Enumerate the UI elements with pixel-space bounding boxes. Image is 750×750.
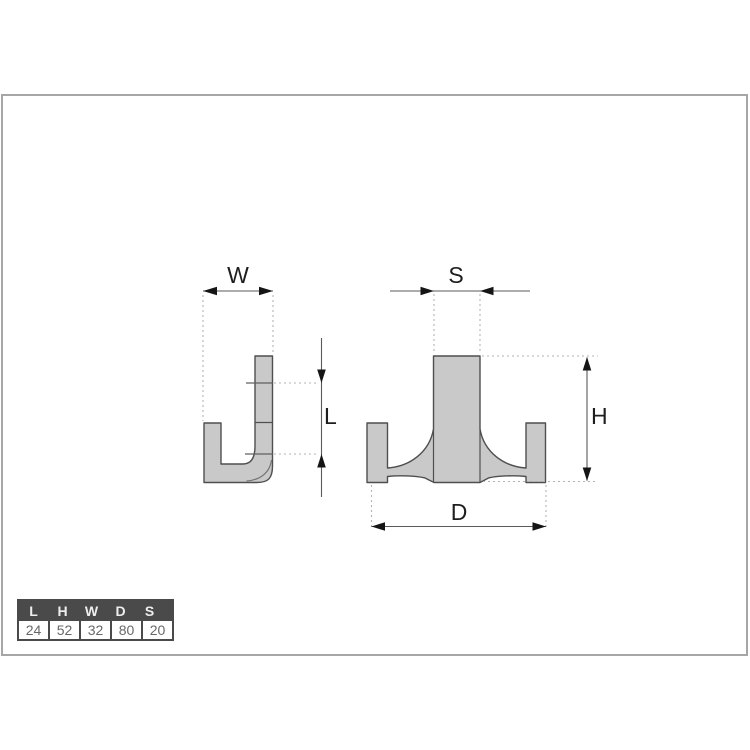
dim-label-l: L [324, 403, 337, 429]
table-value-d: 80 [110, 621, 141, 639]
table-value-l: 24 [19, 621, 48, 639]
s-arrow-right-icon [480, 287, 494, 296]
dim-label-s: S [448, 262, 463, 288]
dim-label-w: W [227, 262, 249, 288]
hook-side-profile [204, 356, 273, 483]
w-arrow-left-icon [203, 287, 217, 296]
l-arrow-up-icon [317, 454, 326, 468]
table-value-s: 20 [141, 621, 172, 639]
dimensions-table-header-row: L H W D S [19, 601, 172, 621]
table-header-h: H [48, 601, 77, 621]
front-view [367, 356, 546, 483]
table-value-h: 52 [48, 621, 79, 639]
l-arrow-down-icon [317, 370, 326, 384]
d-arrow-right-icon [533, 522, 547, 531]
s-arrow-left-icon [421, 287, 435, 296]
table-header-s: S [135, 601, 164, 621]
table-header-w: W [77, 601, 106, 621]
d-arrow-left-icon [372, 522, 386, 531]
dimensions-table: L H W D S 24 52 32 80 20 [17, 599, 174, 641]
dim-label-h: H [591, 403, 608, 429]
table-header-d: D [106, 601, 135, 621]
hook-front-profile [367, 356, 546, 483]
dimensions-table-value-row: 24 52 32 80 20 [19, 621, 172, 639]
side-view [204, 356, 273, 483]
dim-label-d: D [451, 499, 468, 525]
table-header-l: L [19, 601, 48, 621]
h-arrow-top-icon [583, 357, 592, 371]
w-arrow-right-icon [259, 287, 273, 296]
h-arrow-bottom-icon [583, 468, 592, 482]
table-value-w: 32 [79, 621, 110, 639]
